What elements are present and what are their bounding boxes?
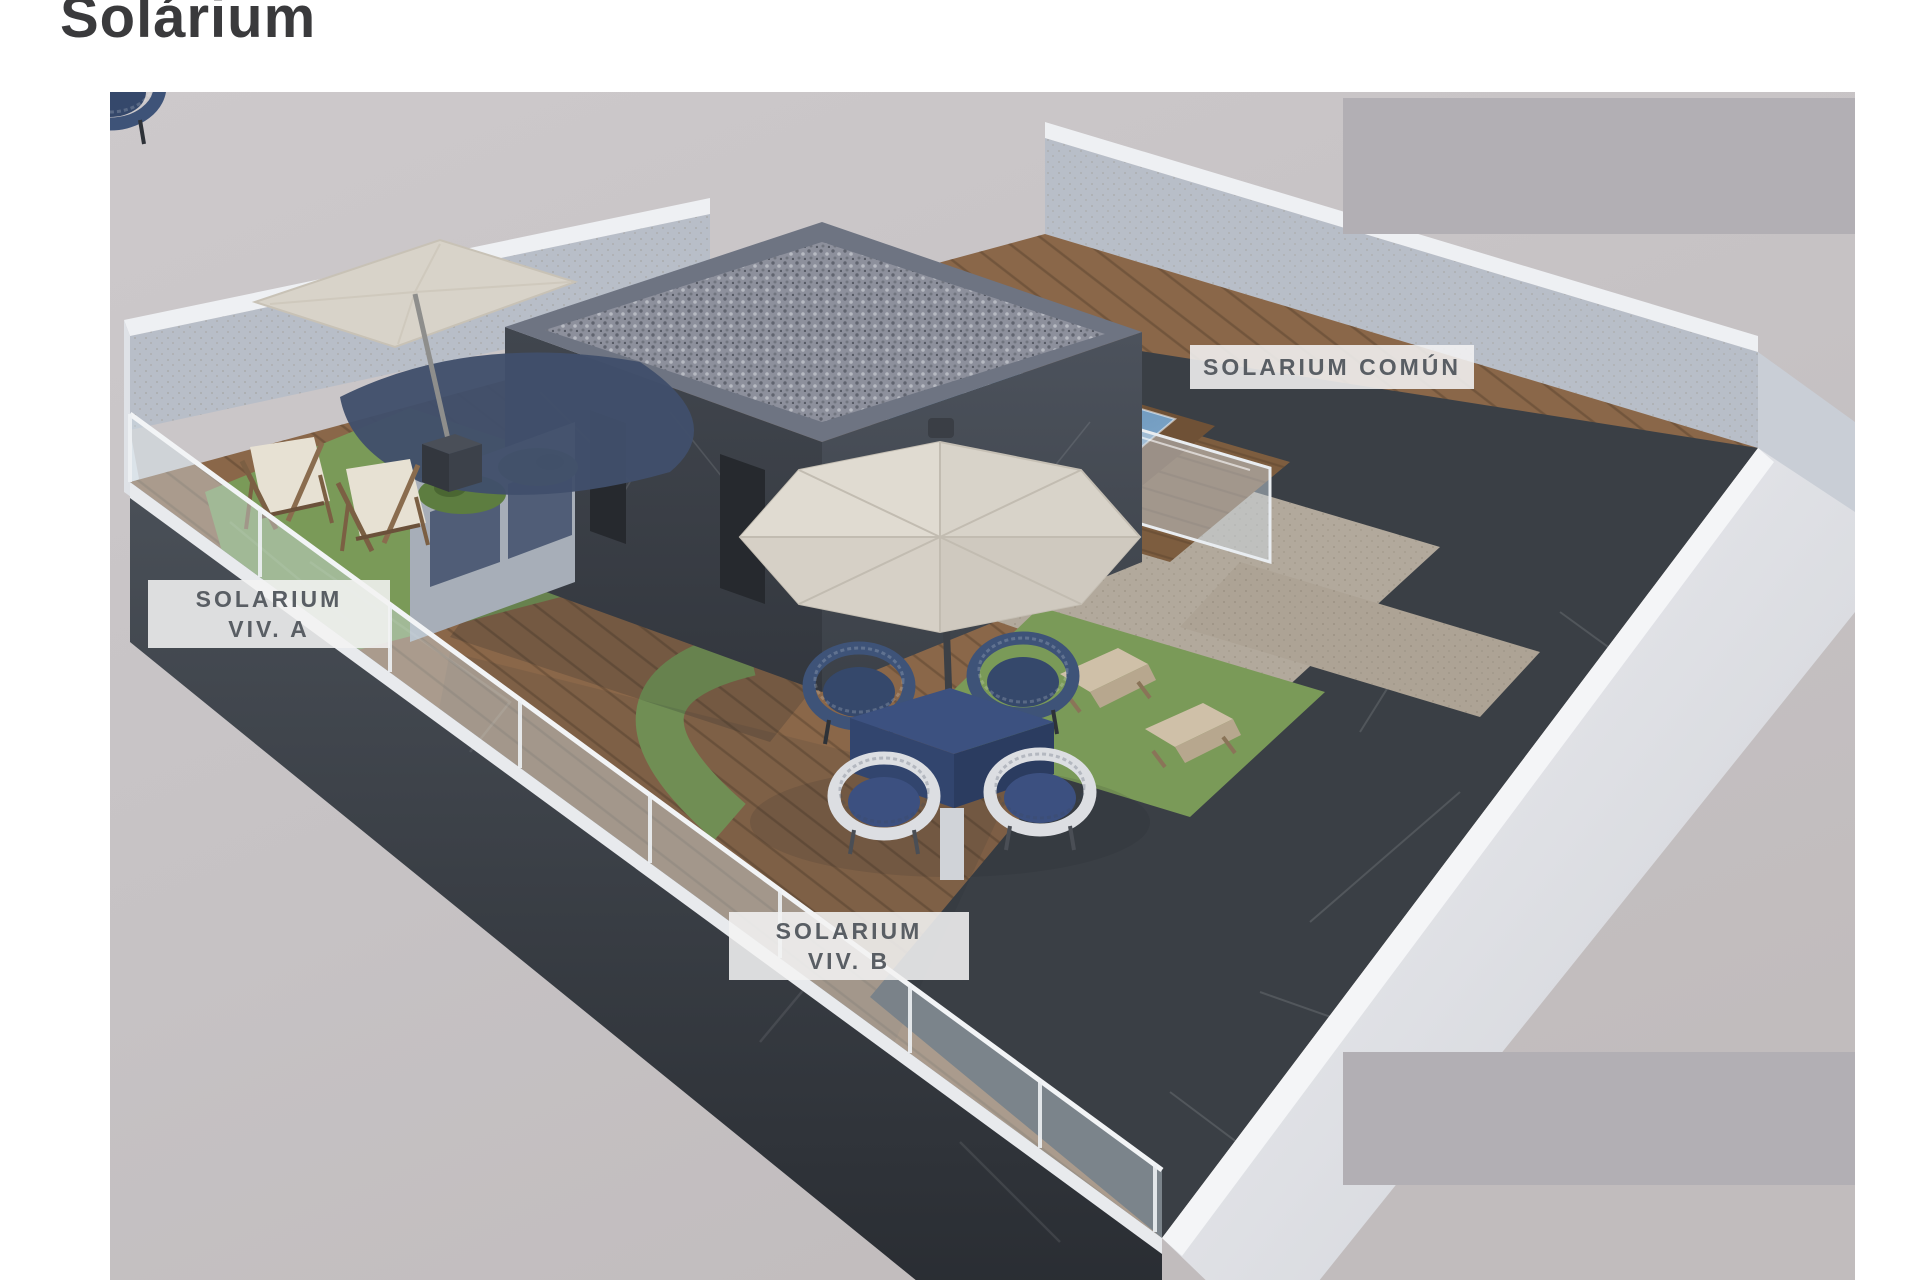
redacted-box-top <box>1343 98 1855 234</box>
render-image: SOLARIUM COMÚN SOLARIUM VIV. A SOLARIUM … <box>110 92 1855 1280</box>
parasol-planter <box>422 434 482 492</box>
label-solarium-viv-a: SOLARIUM VIV. A <box>148 580 390 648</box>
label-solarium-viv-b: SOLARIUM VIV. B <box>729 912 969 980</box>
label-line-1: SOLARIUM <box>776 916 923 946</box>
label-line-2: VIV. B <box>808 946 890 976</box>
label-line-2: VIV. A <box>228 614 310 644</box>
label-line-1: SOLARIUM <box>196 584 343 614</box>
brochure-page: Solárium <box>0 0 1920 1280</box>
page-title: Solárium <box>60 0 316 51</box>
parasol-finial <box>928 418 954 438</box>
label-text: SOLARIUM COMÚN <box>1203 352 1461 382</box>
label-solarium-comun: SOLARIUM COMÚN <box>1190 345 1474 389</box>
redacted-box-bottom <box>1343 1052 1855 1185</box>
